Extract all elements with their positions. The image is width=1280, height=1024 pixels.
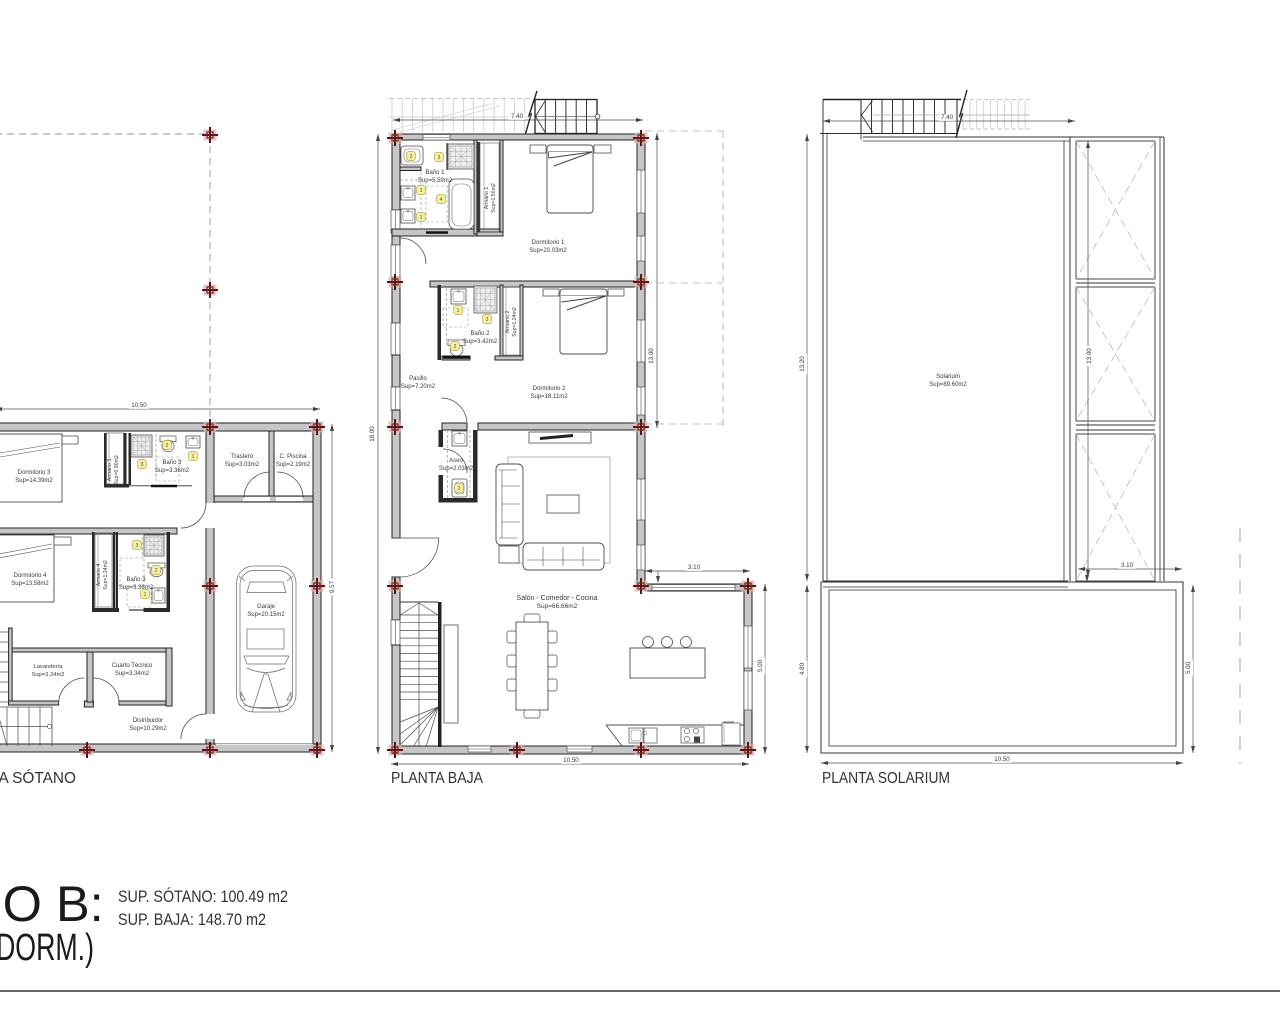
svg-text:Sup=1.34m2: Sup=1.34m2 [103, 560, 109, 590]
svg-text:4: 4 [440, 197, 443, 203]
svg-text:Dormitorio 4: Dormitorio 4 [14, 573, 47, 579]
svg-text:Sup=3.36m2: Sup=3.36m2 [119, 585, 154, 591]
svg-text:5.00: 5.00 [1185, 661, 1192, 674]
svg-text:Armario 1: Armario 1 [484, 187, 490, 210]
svg-text:Dormitorio 1: Dormitorio 1 [532, 240, 565, 246]
svg-text:Distribuidor: Distribuidor [133, 718, 163, 724]
svg-text:Baño 2: Baño 2 [470, 331, 490, 337]
svg-text:SUP. SÓTANO: 100.49 m2: SUP. SÓTANO: 100.49 m2 [118, 887, 288, 906]
svg-text:2: 2 [410, 154, 413, 160]
svg-text:Sup=3.36m2: Sup=3.36m2 [155, 468, 190, 474]
svg-text:Cuarto Técnico: Cuarto Técnico [112, 663, 153, 669]
svg-text:1: 1 [420, 188, 423, 194]
svg-text:Baño 3: Baño 3 [126, 577, 146, 583]
svg-text:DORM.): DORM.) [0, 927, 94, 969]
svg-text:Salón - Comedor - Cocina: Salón - Comedor - Cocina [517, 595, 598, 602]
svg-text:Sup=66.66m2: Sup=66.66m2 [537, 603, 578, 610]
svg-text:18.00: 18.00 [369, 426, 376, 442]
svg-text:Garaje: Garaje [257, 604, 276, 610]
svg-text:PLANTA BAJA: PLANTA BAJA [391, 770, 484, 787]
svg-text:9.57: 9.57 [329, 580, 336, 593]
svg-text:Dormitorio 3: Dormitorio 3 [18, 470, 51, 476]
svg-text:Sup=14.39m2: Sup=14.39m2 [15, 478, 53, 484]
svg-text:Dormitorio 2: Dormitorio 2 [533, 386, 566, 392]
svg-text:Sup=3.42m2: Sup=3.42m2 [463, 339, 498, 345]
svg-text:1: 1 [457, 308, 460, 314]
svg-text:Pasillo: Pasillo [409, 376, 427, 382]
svg-text:SUP. BAJA: 148.70 m2: SUP. BAJA: 148.70 m2 [118, 910, 266, 929]
svg-text:C. Piscina: C. Piscina [279, 454, 307, 460]
svg-text:Baño 3: Baño 3 [162, 460, 182, 466]
svg-text:Sup=20.15m2: Sup=20.15m2 [247, 612, 285, 618]
svg-text:Sup=0.90m2: Sup=0.90m2 [114, 455, 120, 485]
svg-text:Lavandería: Lavandería [33, 664, 63, 670]
svg-text:Solarium: Solarium [936, 374, 960, 380]
svg-text:13.00: 13.00 [648, 348, 655, 364]
svg-text:Sup=20.03m2: Sup=20.03m2 [529, 248, 567, 254]
svg-text:Armario 4: Armario 4 [96, 564, 102, 587]
svg-text:1: 1 [144, 592, 147, 598]
svg-text:3: 3 [136, 543, 139, 549]
svg-text:1: 1 [192, 454, 195, 460]
svg-text:Sup=3.34m2: Sup=3.34m2 [115, 671, 150, 677]
svg-text:7.40: 7.40 [941, 114, 954, 121]
svg-text:Sup=1.56m2: Sup=1.56m2 [491, 183, 497, 213]
svg-text:Aseo: Aseo [449, 458, 463, 464]
svg-text:13.00: 13.00 [1086, 348, 1093, 364]
svg-text:3: 3 [486, 317, 489, 323]
svg-text:Sup=10.29m2: Sup=10.29m2 [129, 726, 167, 732]
svg-text:5.00: 5.00 [757, 659, 764, 672]
svg-text:Baño 1: Baño 1 [425, 170, 445, 176]
svg-text:Trastero: Trastero [231, 454, 254, 460]
svg-text:Sup=2.19m2: Sup=2.19m2 [276, 462, 311, 468]
svg-text:1: 1 [420, 215, 423, 221]
svg-text:3.10: 3.10 [1121, 562, 1134, 569]
svg-text:Sup=7.20m2: Sup=7.20m2 [401, 384, 436, 390]
svg-text:Sup=2.03m2: Sup=2.03m2 [439, 466, 474, 472]
svg-text:3.10: 3.10 [688, 564, 701, 571]
svg-text:10.50: 10.50 [131, 402, 147, 409]
svg-text:Sup=3.03m2: Sup=3.03m2 [225, 462, 260, 468]
svg-text:Sup=3.34m2: Sup=3.34m2 [31, 672, 64, 678]
svg-text:3: 3 [438, 155, 441, 161]
svg-text:2: 2 [458, 486, 461, 492]
svg-text:10.50: 10.50 [563, 757, 579, 764]
svg-text:Sup=1.24m2: Sup=1.24m2 [512, 307, 518, 337]
svg-text:13.20: 13.20 [799, 356, 806, 372]
svg-text:2: 2 [454, 344, 457, 350]
svg-text:4.80: 4.80 [799, 662, 806, 675]
svg-text:Sup=89.60m2: Sup=89.60m2 [929, 382, 967, 388]
svg-text:PLANTA SÓTANO: PLANTA SÓTANO [0, 770, 76, 787]
svg-text:7.40: 7.40 [511, 113, 524, 120]
svg-text:Sup=18.11m2: Sup=18.11m2 [530, 394, 568, 400]
svg-text:Sup=13.58m2: Sup=13.58m2 [11, 581, 49, 587]
svg-text:Armario 3: Armario 3 [107, 459, 113, 482]
svg-text:PO B:: PO B: [0, 875, 104, 932]
svg-text:2: 2 [166, 443, 169, 449]
svg-text:PLANTA SOLARIUM: PLANTA SOLARIUM [822, 770, 950, 787]
svg-text:Armario 2: Armario 2 [505, 311, 511, 334]
svg-text:10.50: 10.50 [994, 756, 1010, 763]
svg-text:2: 2 [155, 568, 158, 574]
svg-text:3: 3 [141, 462, 144, 468]
svg-text:Sup=5.59m2: Sup=5.59m2 [418, 178, 453, 184]
